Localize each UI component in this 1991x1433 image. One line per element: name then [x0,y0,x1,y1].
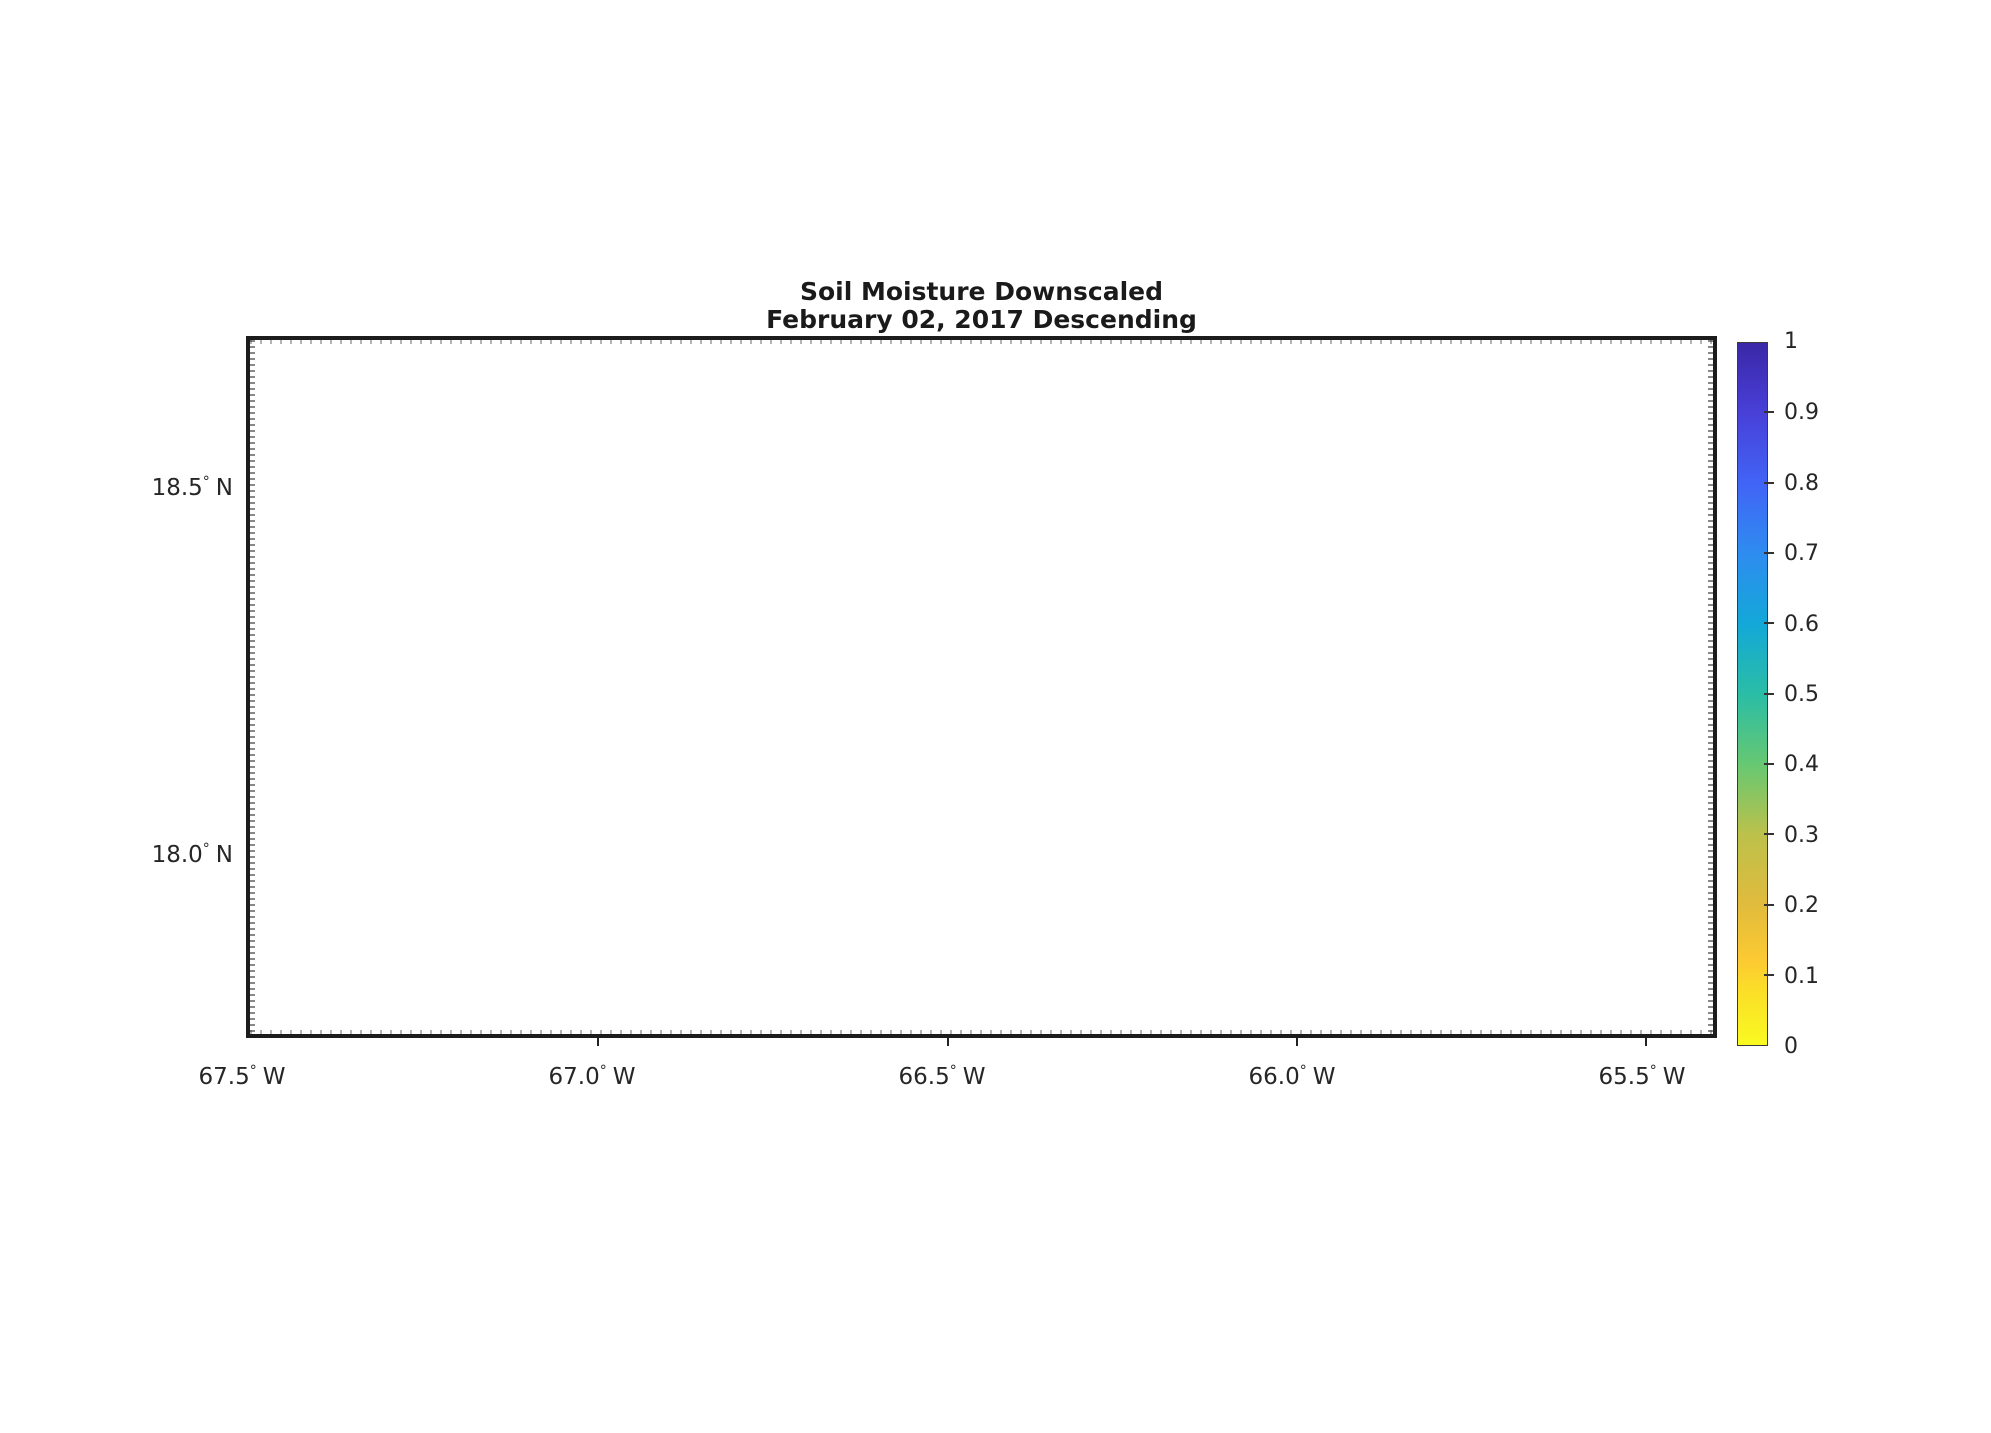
hemisphere-label: W [1313,1064,1336,1090]
colorbar-label: 0.6 [1784,613,1819,637]
hemisphere-label: N [216,475,233,501]
hemisphere-label: W [1663,1064,1686,1090]
chart-title-line2: February 02, 2017 Descending [248,306,1715,334]
x-major-tick [947,1038,949,1046]
colorbar-label: 0.8 [1784,472,1819,496]
colorbar-tick [1764,622,1774,624]
y-tick-label: 18.0°N [118,841,233,868]
x-tick-value: 66.5 [899,1064,950,1090]
colorbar-tick [1764,693,1774,695]
minor-ticks-top [250,340,1713,344]
hemisphere-label: N [216,842,233,868]
colorbar-label: 0.5 [1784,683,1819,707]
colorbar-tick [1764,833,1774,835]
colorbar-label: 0.7 [1784,542,1819,566]
colorbar-label: 1 [1784,330,1798,354]
x-tick-label: 67.0°W [549,1063,636,1090]
hemisphere-label: W [613,1064,636,1090]
minor-ticks-left [250,340,255,1034]
y-tick-value: 18.5 [152,475,203,501]
chart-title-line1: Soil Moisture Downscaled [248,278,1715,306]
hemisphere-label: W [963,1064,986,1090]
x-major-tick [1296,1038,1298,1046]
x-tick-label: 65.5°W [1599,1063,1686,1090]
x-tick-value: 65.5 [1599,1064,1650,1090]
degree-symbol: ° [600,1063,607,1079]
y-tick-value: 18.0 [152,842,203,868]
degree-symbol: ° [203,474,210,490]
degree-symbol: ° [250,1063,257,1079]
x-tick-label: 67.5°W [199,1063,286,1090]
chart-title: Soil Moisture Downscaled February 02, 20… [248,278,1715,334]
y-tick-label: 18.5°N [118,474,233,501]
colorbar-tick [1764,411,1774,413]
soil-moisture-figure: Soil Moisture Downscaled February 02, 20… [0,0,1991,1433]
x-tick-value: 67.5 [199,1064,250,1090]
colorbar-tick [1764,763,1774,765]
colorbar-label: 0.2 [1784,894,1819,918]
colorbar-label: 0.3 [1784,824,1819,848]
colorbar-tick [1764,904,1774,906]
x-major-tick [597,1038,599,1046]
colorbar-label: 0.4 [1784,753,1819,777]
plot-border [246,336,1717,1038]
colorbar-tick [1764,482,1774,484]
degree-symbol: ° [203,841,210,857]
hemisphere-label: W [263,1064,286,1090]
x-tick-value: 66.0 [1249,1064,1300,1090]
x-tick-label: 66.5°W [899,1063,986,1090]
minor-ticks-bottom [250,1030,1713,1034]
colorbar-tick [1764,552,1774,554]
degree-symbol: ° [1650,1063,1657,1079]
colorbar-label: 0.9 [1784,401,1819,425]
x-major-tick [1645,1038,1647,1046]
degree-symbol: ° [1300,1063,1307,1079]
colorbar-label: 0.1 [1784,965,1819,989]
colorbar-label: 0 [1784,1035,1798,1059]
colorbar-tick [1764,974,1774,976]
degree-symbol: ° [950,1063,957,1079]
minor-ticks-right [1708,340,1713,1034]
x-tick-value: 67.0 [549,1064,600,1090]
x-tick-label: 66.0°W [1249,1063,1336,1090]
